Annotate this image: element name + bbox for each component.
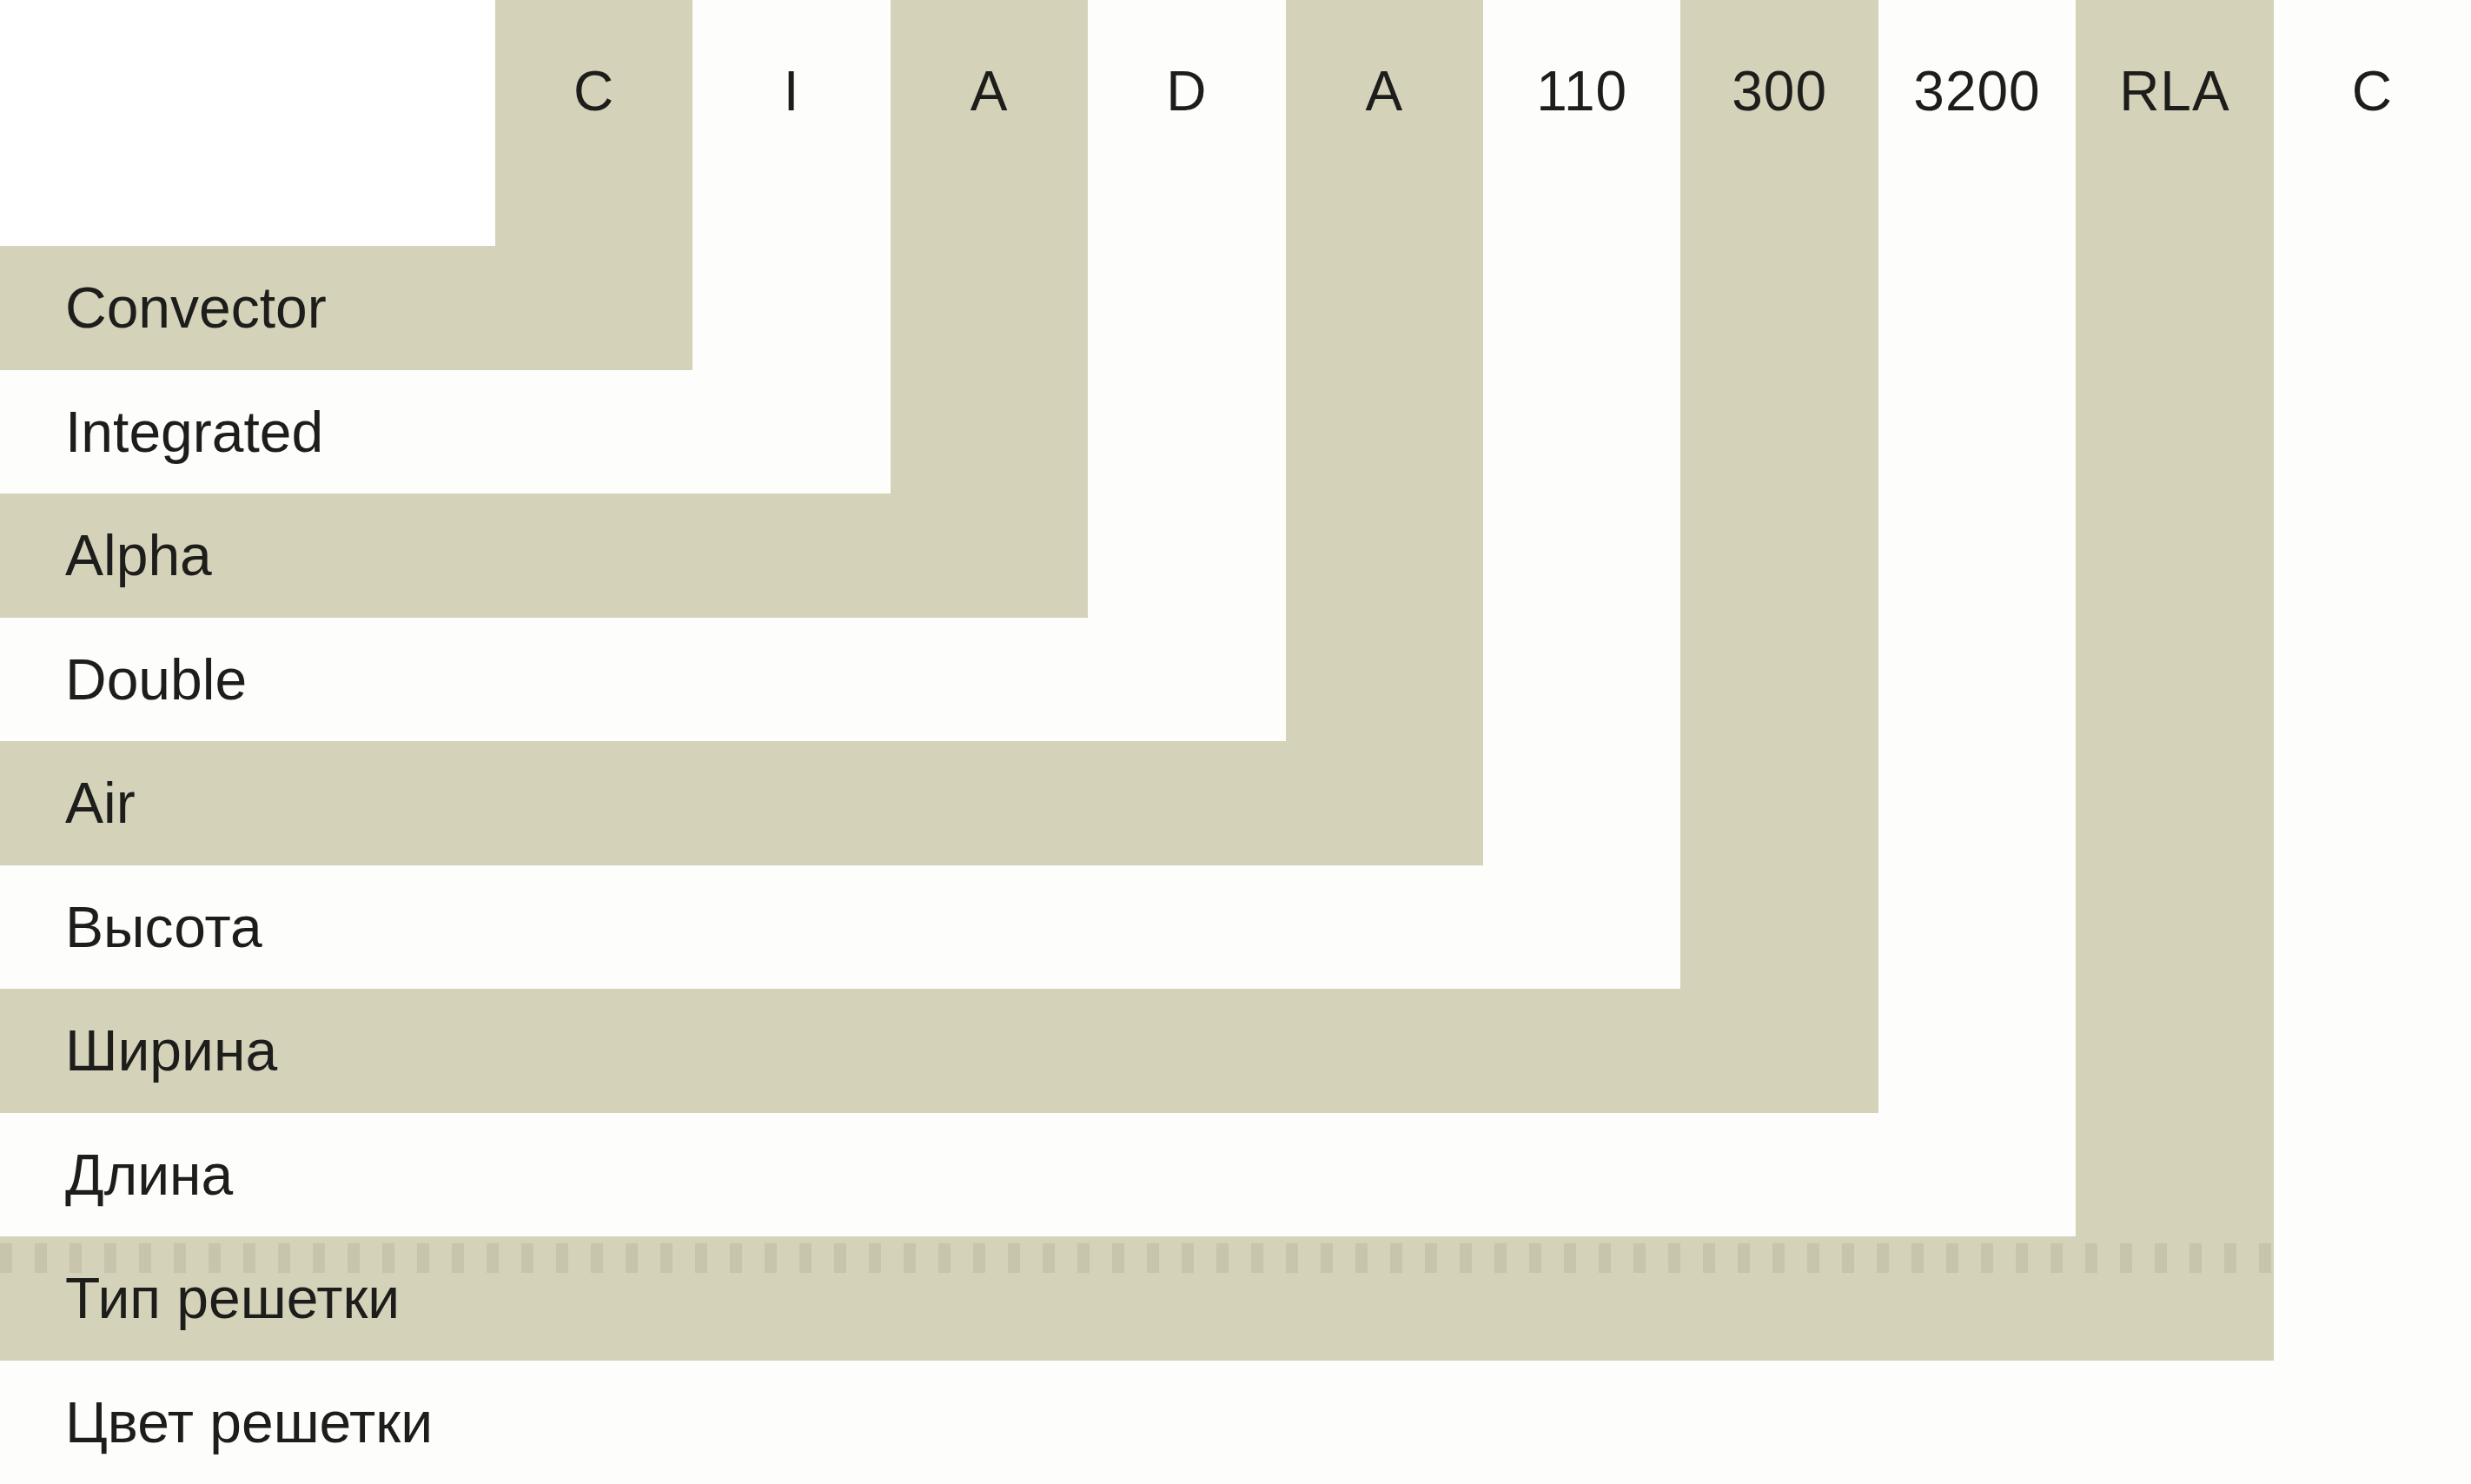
label-text: Тип решетки [65, 1236, 400, 1361]
code-text: 300 [1680, 63, 1878, 119]
code-text: A [891, 63, 1088, 119]
label-text: Air [65, 741, 136, 865]
code-column-bar [1878, 0, 2076, 1236]
label-text: Длина [65, 1113, 233, 1237]
label-row-bar [0, 989, 1878, 1113]
code-text: C [495, 63, 692, 119]
label-text: Convector [65, 246, 327, 370]
label-text: Высота [65, 865, 262, 990]
code-column-bar [1286, 0, 1483, 865]
label-row-bar [0, 741, 1483, 865]
code-text: C [2274, 63, 2471, 119]
label-text: Цвет решетки [65, 1361, 433, 1484]
code-column-bar [1680, 0, 1878, 1113]
label-text: Double [65, 618, 247, 742]
code-text: I [692, 63, 890, 119]
label-row-bar [0, 1113, 2076, 1237]
code-text: 110 [1483, 63, 1680, 119]
code-text: 3200 [1878, 63, 2076, 119]
nomenclature-diagram: C Convector I Integrated A Alpha D Doubl… [0, 0, 2471, 1484]
code-column-bar [2274, 0, 2471, 1484]
label-text: Integrated [65, 370, 323, 494]
label-text: Alpha [65, 494, 212, 618]
code-column-bar [1483, 0, 1680, 989]
label-text: Ширина [65, 989, 277, 1113]
code-column-bar [2076, 0, 2273, 1361]
code-text: A [1286, 63, 1483, 119]
code-text: RLA [2076, 63, 2273, 119]
code-text: D [1088, 63, 1285, 119]
